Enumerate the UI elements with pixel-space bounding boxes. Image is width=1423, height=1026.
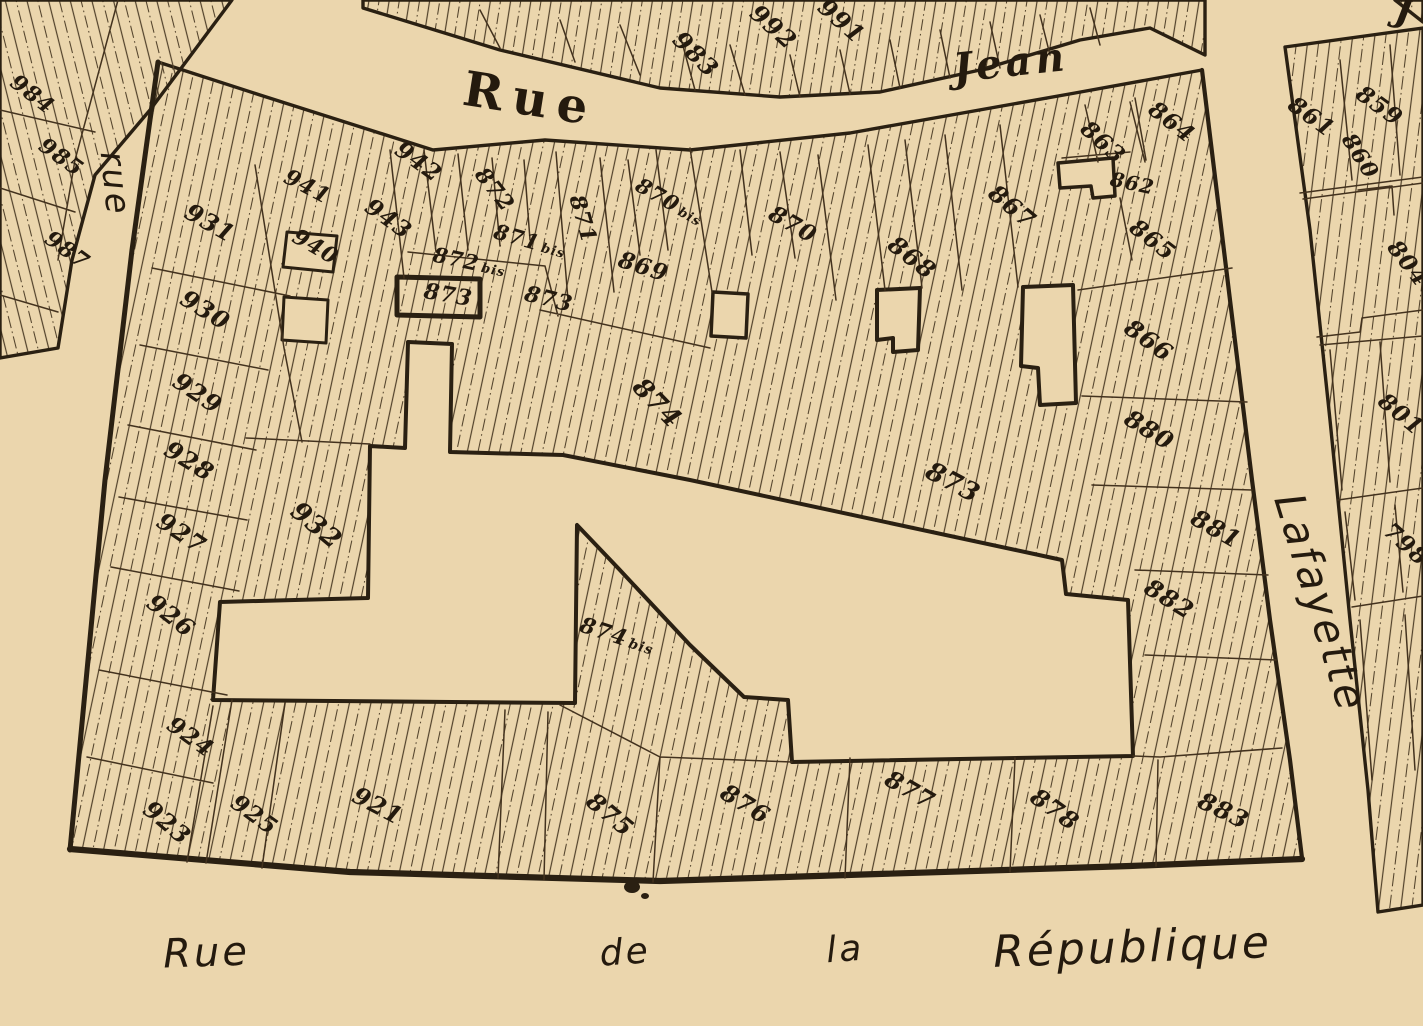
street-label-republique-de: de <box>598 930 652 974</box>
cadastral-map: 9849859879839929918598608618048017989319… <box>0 0 1423 1026</box>
street-label-republique-name: République <box>992 917 1272 978</box>
street-label-rue-left: rue <box>92 149 139 218</box>
street-label-republique-rue: Rue <box>162 929 250 978</box>
street-label-republique-la: la <box>825 928 866 972</box>
building-943 <box>282 297 328 343</box>
building-874 <box>711 292 748 338</box>
